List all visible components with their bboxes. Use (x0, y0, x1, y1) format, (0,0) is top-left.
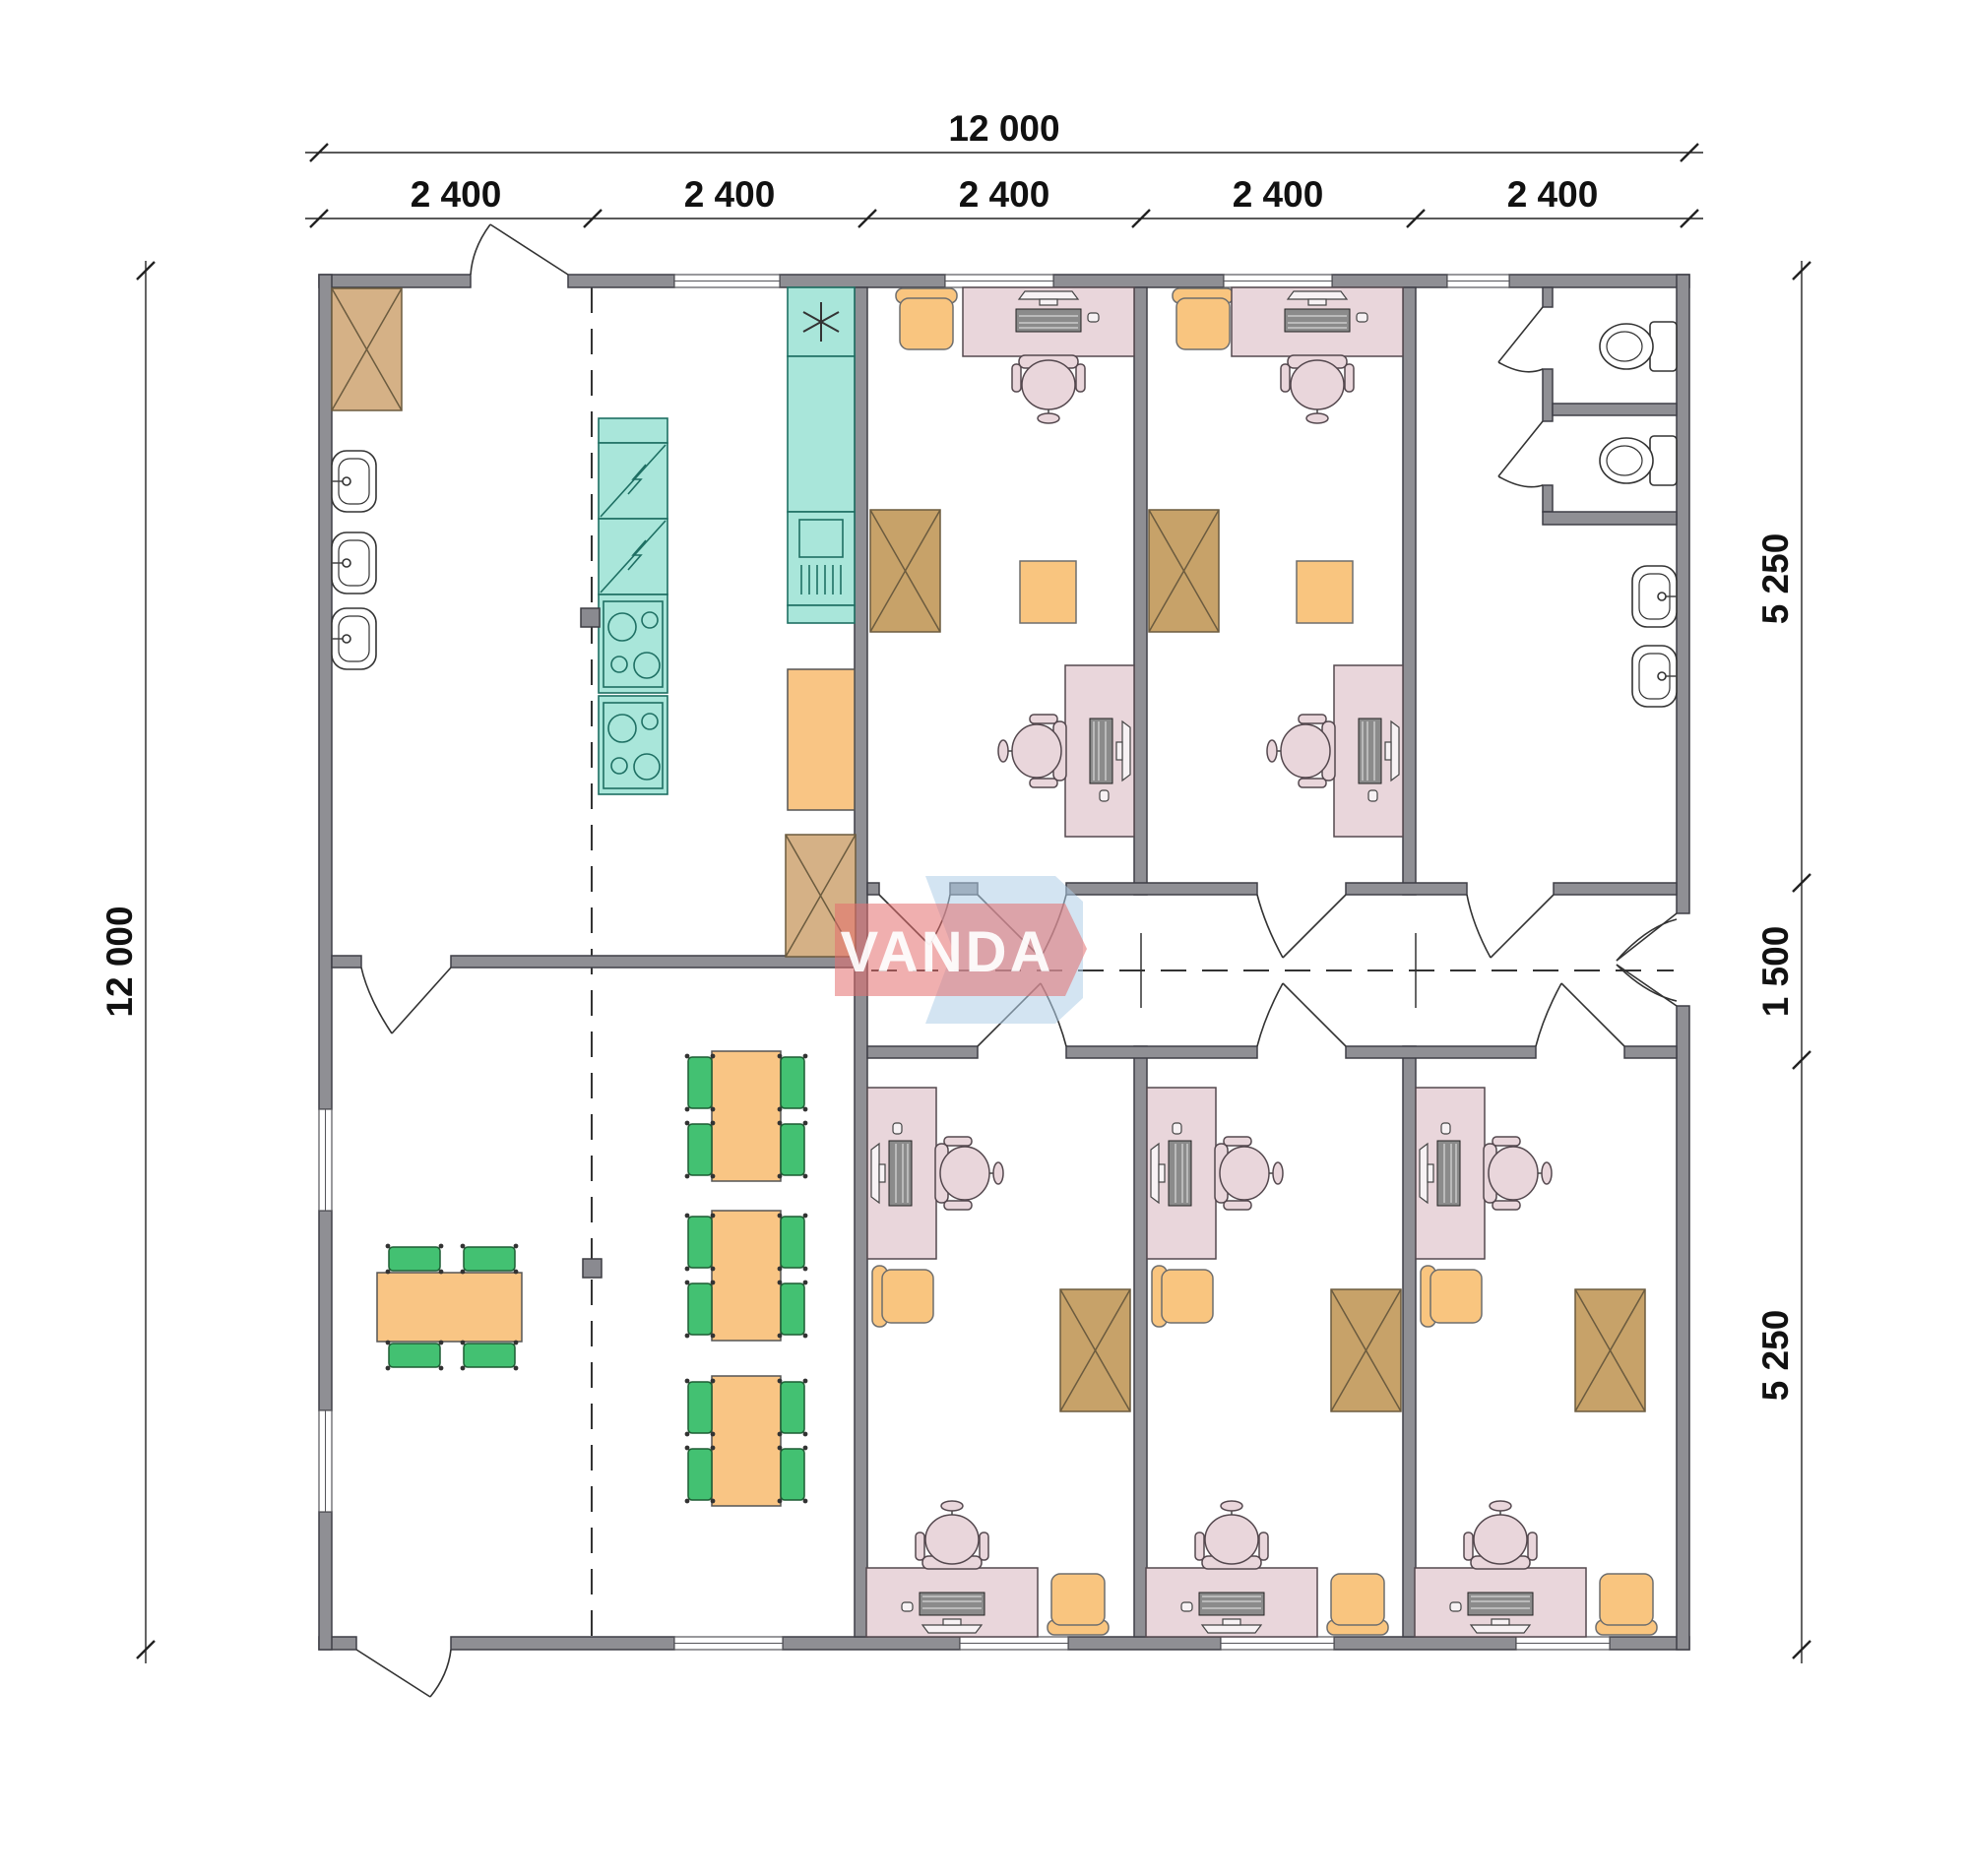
dining-table (377, 1273, 522, 1342)
room-office-3 (866, 1088, 1130, 1637)
chair-icon (461, 1244, 519, 1275)
chair-icon (685, 1121, 716, 1179)
sink-icon (332, 608, 376, 669)
dining-door (361, 968, 451, 1033)
window (1224, 275, 1332, 287)
wardrobe-icon (1575, 1289, 1645, 1411)
armchair-icon (896, 288, 957, 349)
chair-icon (778, 1054, 808, 1112)
wardrobe-icon (1060, 1289, 1130, 1411)
armchair-icon (1048, 1574, 1109, 1635)
window (945, 275, 1053, 287)
desk-computer-icon (998, 665, 1134, 837)
room-office-1 (870, 287, 1134, 837)
armchair-icon (872, 1266, 933, 1327)
dim-module-3: 2 400 (959, 174, 1050, 215)
chair-icon (778, 1121, 808, 1179)
chair-icon (386, 1341, 444, 1371)
desk-computer-icon (963, 287, 1134, 423)
washroom-door (1467, 895, 1554, 958)
window (1447, 275, 1509, 287)
desk-computer-icon (1267, 665, 1403, 837)
stove-icon (599, 594, 667, 693)
dim-module-2: 2 400 (684, 174, 776, 215)
dim-top-total: 12 000 (948, 108, 1059, 149)
column (583, 1259, 602, 1278)
armchair-icon (1596, 1574, 1657, 1635)
room-office-5 (1415, 1088, 1657, 1637)
chair-icon (778, 1446, 808, 1504)
dim-left-total: 12 000 (99, 906, 140, 1017)
dining-table (712, 1376, 781, 1506)
wardrobe-icon (1149, 510, 1219, 632)
desk-computer-icon (1416, 1088, 1552, 1259)
desk-computer-icon (1146, 1501, 1317, 1637)
room-kitchen (581, 287, 856, 957)
corridor-end-double-door (1617, 913, 1677, 1006)
chair-icon (461, 1341, 519, 1371)
desk-computer-icon (1415, 1501, 1586, 1637)
chair-icon (778, 1214, 808, 1272)
floor-plan-page: 12 000 2 400 2 400 2 400 2 400 2 400 12 … (0, 0, 1969, 1871)
room-office-4 (1146, 1088, 1401, 1637)
dim-right-top: 5 250 (1755, 533, 1796, 625)
kitchen-counter (599, 418, 667, 443)
window (674, 1637, 783, 1650)
office5-door (1536, 983, 1624, 1046)
wardrobe-icon (870, 510, 940, 632)
vanda-logo: VANDA (835, 876, 1087, 1024)
desk-computer-icon (1147, 1088, 1283, 1259)
wardrobe-icon (1331, 1289, 1401, 1411)
toilet-icon (1600, 436, 1677, 485)
window (1221, 1637, 1334, 1650)
toilet-icon (1600, 322, 1677, 371)
sink-icon (332, 532, 376, 594)
floor-plan-drawing: 12 000 2 400 2 400 2 400 2 400 2 400 12 … (0, 0, 1969, 1871)
desk-computer-icon (1232, 287, 1403, 423)
window (319, 1109, 332, 1211)
chair-icon (685, 1446, 716, 1504)
exit-door-bottom (356, 1650, 451, 1697)
wardrobe-icon (332, 288, 402, 410)
office4-door (1257, 983, 1346, 1046)
freezer-icon (788, 287, 855, 356)
kitchen-sink-icon (788, 512, 855, 605)
entrance-door-top (471, 224, 568, 275)
armchair-icon (1327, 1574, 1388, 1635)
cabinet-icon (1297, 561, 1353, 623)
office2-door (1257, 895, 1346, 958)
desk-computer-icon (867, 1088, 1003, 1259)
window (1516, 1637, 1610, 1650)
kitchen-counter (788, 356, 855, 512)
window (319, 1410, 332, 1512)
dim-right-middle: 1 500 (1755, 926, 1796, 1018)
chair-icon (778, 1379, 808, 1437)
fridge-icon (599, 443, 667, 519)
chair-icon (778, 1281, 808, 1339)
chair-icon (685, 1379, 716, 1437)
kitchen-table (788, 669, 855, 810)
sink-icon (332, 451, 376, 512)
wc-stall-door (1498, 307, 1543, 372)
kitchen-counter (788, 605, 855, 623)
desk-computer-icon (866, 1501, 1038, 1637)
stove-icon (599, 696, 667, 794)
room-cloakroom (332, 288, 402, 669)
dim-right-bottom: 5 250 (1755, 1310, 1796, 1402)
dim-module-4: 2 400 (1233, 174, 1324, 215)
dim-module-1: 2 400 (411, 174, 502, 215)
armchair-icon (1173, 288, 1234, 349)
column (581, 608, 600, 627)
window (960, 1637, 1068, 1650)
dim-module-5: 2 400 (1507, 174, 1599, 215)
dining-table (712, 1211, 781, 1341)
armchair-icon (1152, 1266, 1213, 1327)
fridge-icon (599, 519, 667, 594)
sink-icon (1632, 646, 1677, 707)
chair-icon (685, 1281, 716, 1339)
cabinet-icon (1020, 561, 1076, 623)
window (674, 275, 780, 287)
armchair-icon (1421, 1266, 1482, 1327)
logo-text: VANDA (841, 920, 1054, 984)
sink-icon (1632, 566, 1677, 627)
room-office-2 (1149, 287, 1403, 837)
dining-table (712, 1051, 781, 1181)
chair-icon (685, 1214, 716, 1272)
chair-icon (386, 1244, 444, 1275)
wc-stall-door (1498, 421, 1543, 487)
chair-icon (685, 1054, 716, 1112)
